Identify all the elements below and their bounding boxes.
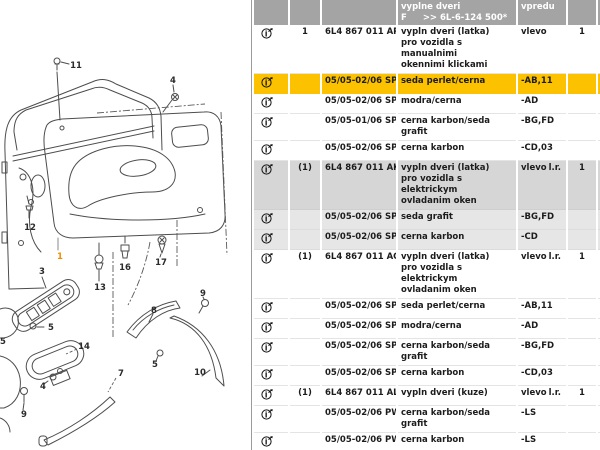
diagram-callout-5[interactable]: 5 [152,361,158,370]
cell-position: -BG,FD [518,339,566,366]
part-info-icon[interactable]: i [261,232,274,247]
cell-part-number: 6L4 867 011 AQ [322,250,396,299]
cell-part-info: i [254,319,288,339]
cell-description: modra/cerna [398,319,516,339]
part-info-icon[interactable]: i [261,388,274,403]
cell-description: vypln dveri (kuze) [398,386,516,406]
header-qty-col [568,0,596,25]
table-row[interactable]: i 05/05-02/06 SPEseda perlet/cerna-AB,11 [254,74,600,94]
cell-part-info: i [254,114,288,141]
header-title: vyplne dveri [401,2,513,12]
table-row[interactable]: i 05/05-02/06 SPEseda perlet/cerna-AB,11 [254,299,600,319]
cell-callout-ref: (1) [290,161,320,210]
cell-part-number: 05/05-02/06 SPE [322,299,396,319]
cell-description: vypln dveri (latka) pro vozidla s elektr… [398,250,516,299]
table-row[interactable]: i 05/05-01/06 SPHcerna karbon/seda grafi… [254,114,600,141]
part-info-icon[interactable]: i [261,143,274,158]
diagram-callout-11[interactable]: 11 [70,62,82,71]
side-label: l.r. [549,388,561,398]
svg-text:i: i [265,437,268,446]
cell-part-info: i [254,339,288,366]
cell-part-number: 05/05-02/06 SPH [322,339,396,366]
svg-text:i: i [265,145,268,154]
cell-quantity [568,319,596,339]
cell-position: vlevol.r. [518,250,566,299]
part-info-icon[interactable]: i [261,163,274,178]
part-info-icon[interactable]: i [261,301,274,316]
position-label: vlevo [521,388,547,398]
diagram-callout-12[interactable]: 12 [24,224,36,233]
svg-text:i: i [265,118,268,127]
cell-quantity [568,366,596,386]
header-part-number-col [322,0,396,25]
diagram-callout-9[interactable]: 9 [200,290,206,299]
cell-part-info: i [254,250,288,299]
table-row[interactable]: i 05/05-02/06 SPKcerna karbon-CD,03 [254,141,600,161]
table-row[interactable]: i 05/05-02/06 SPKcerna karbon-CD,03 [254,366,600,386]
part-info-icon[interactable]: i [261,252,274,267]
svg-text:i: i [265,370,268,379]
cell-description: seda perlet/cerna [398,74,516,94]
cell-description: modra/cerna [398,94,516,114]
cell-part-info: i [254,94,288,114]
table-row[interactable]: i 16L4 867 011 APvypln dveri (latka) pro… [254,25,600,74]
parts-table-pane: vyplne dveri F >> 6L-6-124 500* vpredu i [251,0,600,450]
cell-position: -LS [518,406,566,433]
cell-callout-ref [290,94,320,114]
parts-catalog-window: 1141213161713985514510749 vyplne dveri F [0,0,600,450]
part-info-icon[interactable]: i [261,116,274,131]
svg-text:i: i [265,303,268,312]
cell-part-info: i [254,386,288,406]
diagram-callout-5[interactable]: 5 [48,324,54,333]
cell-part-info: i [254,74,288,94]
cell-part-info: i [254,406,288,433]
diagram-callout-16[interactable]: 16 [119,264,131,273]
cell-position: vlevol.r. [518,386,566,406]
cell-part-number: 6L4 867 011 AL [322,386,396,406]
cell-part-number: 05/05-02/06 SPJ [322,230,396,250]
cell-description: cerna karbon [398,366,516,386]
cell-part-number: 05/05-02/06 SPE [322,74,396,94]
table-row[interactable]: i (1)6L4 867 011 AKvypln dveri (latka) p… [254,161,600,210]
svg-text:i: i [265,390,268,399]
cell-callout-ref [290,114,320,141]
svg-text:i: i [265,78,268,87]
cell-quantity [568,74,596,94]
cell-callout-ref: (1) [290,250,320,299]
cell-quantity: 1 [568,250,596,299]
svg-text:i: i [265,165,268,174]
cell-callout-ref [290,366,320,386]
cell-position: -BG,FD [518,114,566,141]
part-info-icon[interactable]: i [261,321,274,336]
cell-position: -AB,11 [518,299,566,319]
cell-description: seda perlet/cerna [398,299,516,319]
cell-callout-ref [290,319,320,339]
cell-quantity [568,114,596,141]
svg-text:i: i [265,234,268,243]
door-parts-diagram [0,0,251,450]
cell-part-info: i [254,161,288,210]
position-label: vlevo [521,27,547,37]
cell-callout-ref: 1 [290,25,320,74]
cell-description: cerna karbon/seda grafit [398,406,516,433]
cell-part-number: 6L4 867 011 AP [322,25,396,74]
cell-callout-ref [290,230,320,250]
cell-position: -AD [518,94,566,114]
svg-text:i: i [265,343,268,352]
cell-quantity [568,210,596,230]
cell-callout-ref [290,74,320,94]
cell-part-number: 05/05-01/06 SPH [322,114,396,141]
cell-quantity [568,141,596,161]
cell-part-info: i [254,230,288,250]
cell-description: cerna karbon/seda grafit [398,339,516,366]
cell-position: vlevol.r. [518,161,566,210]
cell-quantity: 1 [568,386,596,406]
cell-quantity [568,433,596,450]
diagram-callout-13[interactable]: 13 [94,284,106,293]
cell-part-number: 05/05-02/06 SPG [322,210,396,230]
cell-part-number: 05/05-02/06 SPF [322,94,396,114]
cell-position: vlevo [518,25,566,74]
cell-callout-ref [290,339,320,366]
cell-part-number: 05/05-02/06 PWL [322,406,396,433]
diagram-callout-3[interactable]: 3 [39,268,45,277]
diagram-callout-14[interactable]: 14 [78,343,90,352]
table-row[interactable]: i 05/05-02/06 SPGseda grafit-BG,FD [254,210,600,230]
cell-quantity [568,406,596,433]
diagram-callout-5[interactable]: 5 [0,338,6,347]
part-info-icon[interactable]: i [261,27,274,42]
svg-text:i: i [265,254,268,263]
cell-quantity [568,299,596,319]
cell-part-info: i [254,433,288,450]
header-ref-col [290,0,320,25]
cell-callout-ref [290,210,320,230]
part-info-icon[interactable]: i [261,341,274,356]
table-row[interactable]: i (1)6L4 867 011 AQvypln dveri (latka) p… [254,250,600,299]
svg-text:i: i [265,410,268,419]
table-row[interactable]: i 05/05-02/06 SPFmodra/cerna-AD [254,319,600,339]
cell-description: vypln dveri (latka) pro vozidla s manual… [398,25,516,74]
cell-description: vypln dveri (latka) pro vozidla s elektr… [398,161,516,210]
part-info-icon[interactable]: i [261,96,274,111]
side-label: l.r. [549,163,561,173]
cell-description: cerna karbon [398,433,516,450]
position-label: vlevo [521,252,547,262]
cell-part-info: i [254,210,288,230]
header-icon-col [254,0,288,25]
cell-quantity [568,230,596,250]
cell-callout-ref [290,299,320,319]
diagram-callout-8[interactable]: 8 [151,307,157,316]
header-description-col: vyplne dveri F >> 6L-6-124 500* [398,0,516,25]
diagram-callout-1[interactable]: 1 [57,253,63,262]
position-label: vlevo [521,163,547,173]
cell-position: -AD [518,319,566,339]
svg-text:i: i [265,323,268,332]
table-header-row: vyplne dveri F >> 6L-6-124 500* vpredu [254,0,600,25]
part-info-icon[interactable]: i [261,408,274,423]
table-row[interactable]: i 05/05-02/06 SPJcerna karbon-CD [254,230,600,250]
table-row[interactable]: i 05/05-02/06 PWLcerna karbon/seda grafi… [254,406,600,433]
svg-text:i: i [265,29,268,38]
cell-quantity: 1 [568,161,596,210]
part-info-icon[interactable]: i [261,435,274,450]
cell-part-number: 6L4 867 011 AK [322,161,396,210]
diagram-callout-10[interactable]: 10 [194,369,206,378]
diagram-callout-17[interactable]: 17 [155,259,167,268]
diagram-callout-4[interactable]: 4 [40,383,46,392]
table-row[interactable]: i 05/05-02/06 SPFmodra/cerna-AD [254,94,600,114]
cell-position: -CD [518,230,566,250]
cell-part-info: i [254,25,288,74]
cell-description: cerna karbon [398,230,516,250]
cell-position: -LS [518,433,566,450]
diagram-callout-9[interactable]: 9 [21,411,27,420]
header-position-col: vpredu [518,0,566,25]
diagram-callout-7[interactable]: 7 [118,370,124,379]
cell-part-info: i [254,366,288,386]
cell-callout-ref: (1) [290,386,320,406]
cell-quantity: 1 [568,25,596,74]
diagram-callout-4[interactable]: 4 [170,77,176,86]
table-row[interactable]: i (1)6L4 867 011 ALvypln dveri (kuze)vle… [254,386,600,406]
cell-description: cerna karbon [398,141,516,161]
cell-part-number: 05/05-02/06 PWM [322,433,396,450]
cell-part-info: i [254,141,288,161]
table-row[interactable]: i 05/05-02/06 SPHcerna karbon/seda grafi… [254,339,600,366]
part-info-icon[interactable]: i [261,76,274,91]
cell-quantity [568,339,596,366]
parts-table: vyplne dveri F >> 6L-6-124 500* vpredu i [252,0,600,450]
cell-description: cerna karbon/seda grafit [398,114,516,141]
cell-part-number: 05/05-02/06 SPK [322,141,396,161]
cell-callout-ref [290,141,320,161]
cell-callout-ref [290,433,320,450]
cell-position: -AB,11 [518,74,566,94]
cell-quantity [568,94,596,114]
cell-position: -CD,03 [518,141,566,161]
cell-callout-ref [290,406,320,433]
side-label: l.r. [549,252,561,262]
diagram-pane: 1141213161713985514510749 [0,0,251,450]
header-chassis-range: F >> 6L-6-124 500* [401,13,513,23]
cell-position: -BG,FD [518,210,566,230]
table-row[interactable]: i 05/05-02/06 PWMcerna karbon-LS [254,433,600,450]
cell-position: -CD,03 [518,366,566,386]
part-info-icon[interactable]: i [261,212,274,227]
svg-text:i: i [265,214,268,223]
cell-part-number: 05/05-02/06 SPK [322,366,396,386]
cell-part-info: i [254,299,288,319]
svg-text:i: i [265,98,268,107]
cell-description: seda grafit [398,210,516,230]
cell-part-number: 05/05-02/06 SPF [322,319,396,339]
part-info-icon[interactable]: i [261,368,274,383]
